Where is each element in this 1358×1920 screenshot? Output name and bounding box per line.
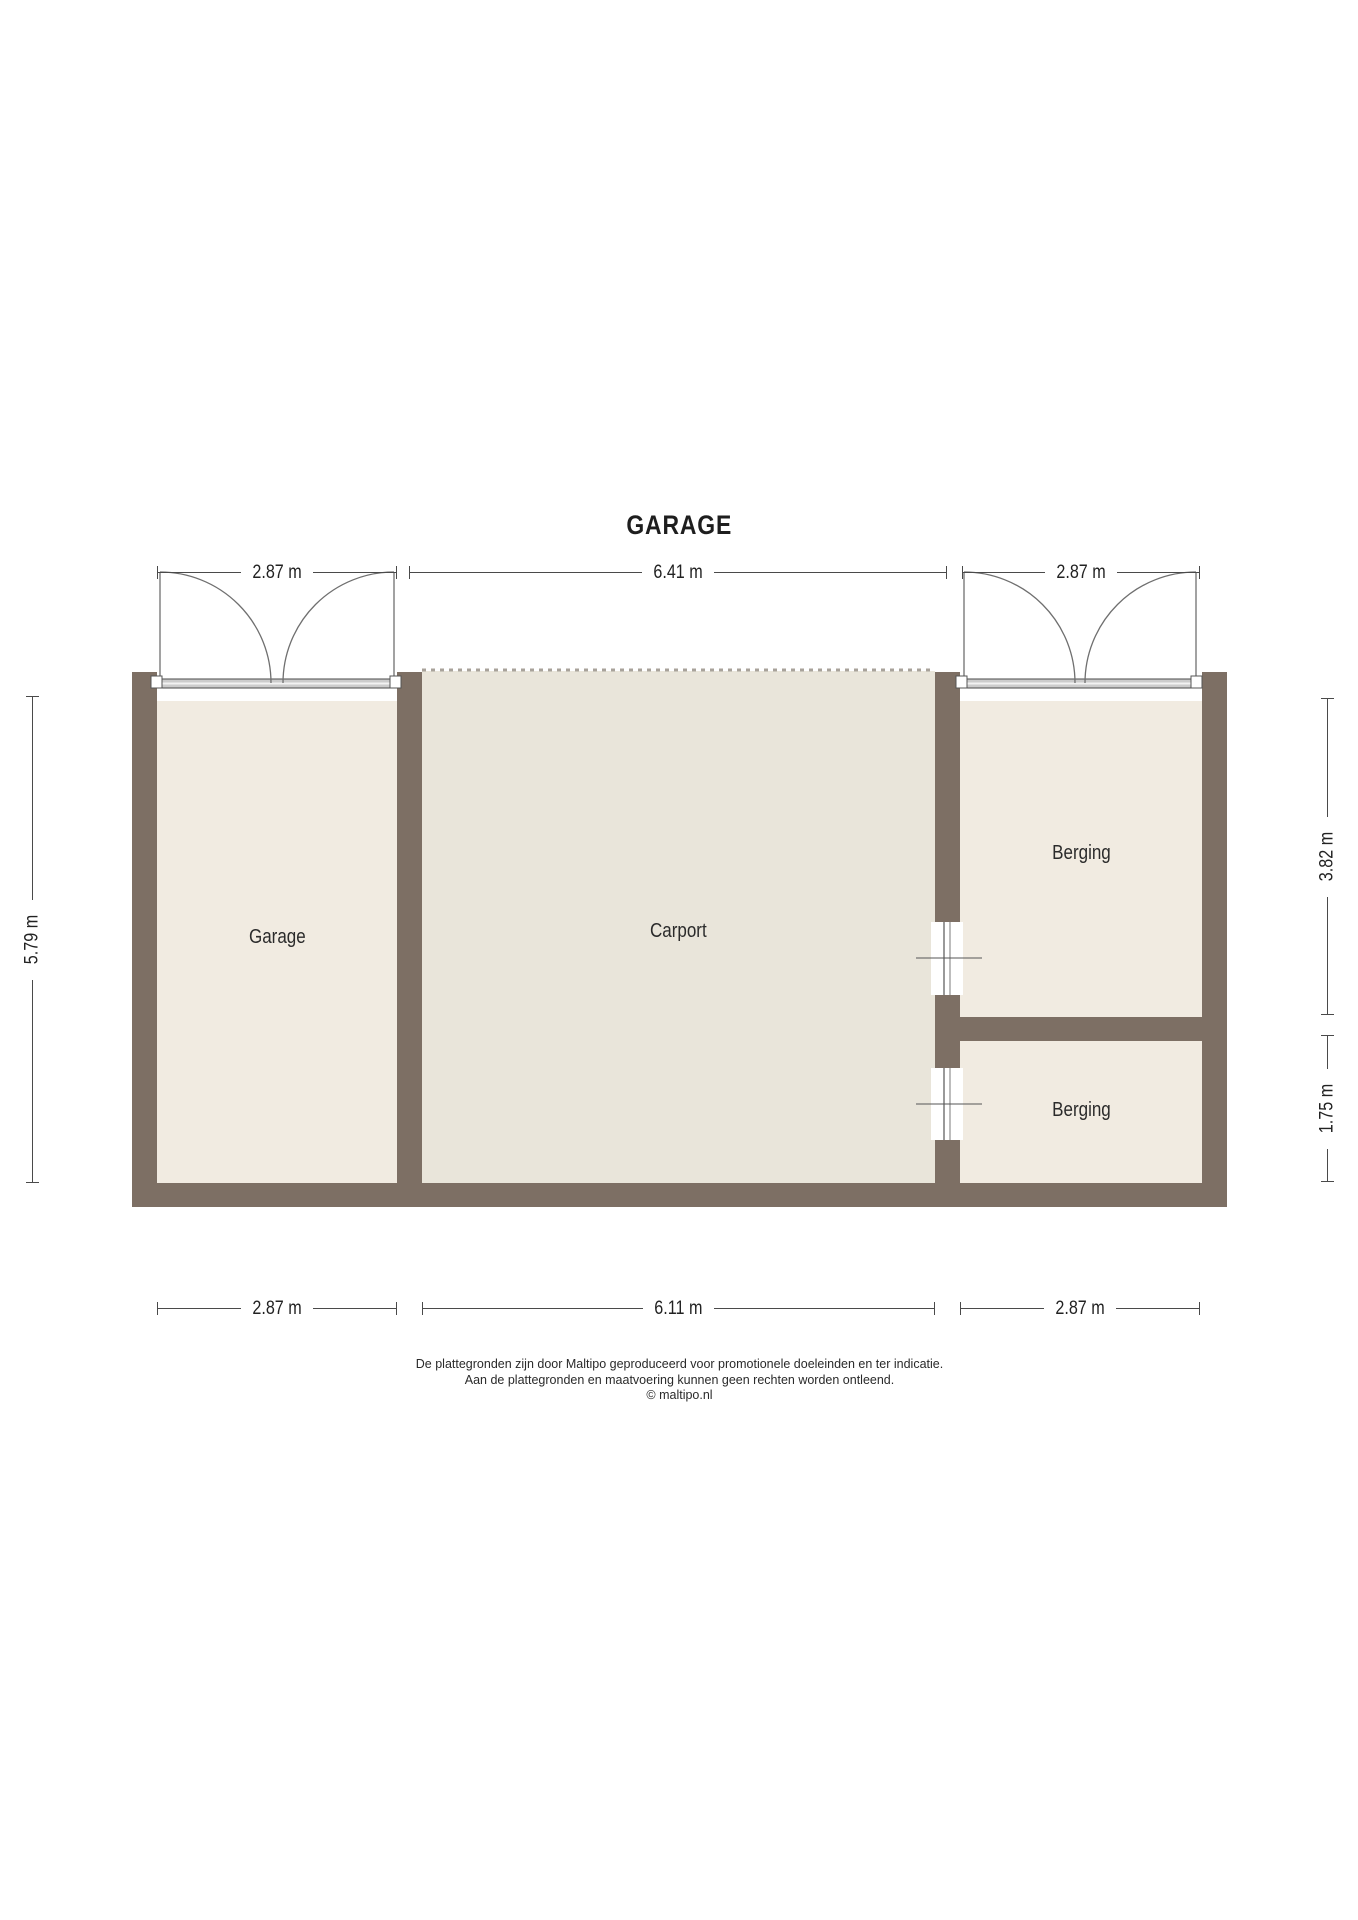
page-title-text: GARAGE	[627, 512, 733, 539]
wall-carport-berging-upper	[935, 672, 960, 922]
dimension-bottom-center: 6.11 m	[422, 1297, 935, 1319]
garage-double-door-icon	[151, 572, 401, 688]
dimension-bottom-left: 2.87 m	[157, 1297, 397, 1319]
disclaimer: De plattegronden zijn door Maltipo gepro…	[132, 1357, 1227, 1404]
wall-bottom	[132, 1183, 1227, 1207]
dimension-left: 5.79 m	[21, 696, 43, 1183]
wall-garage-carport	[397, 672, 422, 1183]
wall-left	[132, 672, 157, 1207]
berging-double-door-icon	[956, 572, 1202, 688]
wall-carport-berging-lower	[935, 1140, 960, 1183]
dimension-bottom-right: 2.87 m	[960, 1297, 1200, 1319]
dimension-top-center: 6.41 m	[409, 561, 947, 583]
room-label-berging-bottom: Berging	[960, 1100, 1202, 1120]
disclaimer-line-1: De plattegronden zijn door Maltipo gepro…	[132, 1357, 1227, 1373]
dimension-right-bottom: 1.75 m	[1316, 1035, 1338, 1182]
floorplan-page: GARAGE	[0, 0, 1358, 1920]
disclaimer-line-3: © maltipo.nl	[132, 1388, 1227, 1404]
page-title: GARAGE	[132, 512, 1227, 539]
room-label-berging-top: Berging	[960, 843, 1202, 863]
wall-berging-divider	[935, 1017, 1202, 1041]
dimension-right-top: 3.82 m	[1316, 698, 1338, 1015]
room-label-garage: Garage	[157, 927, 397, 947]
dimension-top-right: 2.87 m	[962, 561, 1200, 583]
dimension-top-left: 2.87 m	[157, 561, 397, 583]
disclaimer-line-2: Aan de plattegronden en maatvoering kunn…	[132, 1373, 1227, 1389]
room-label-carport: Carport	[422, 921, 935, 941]
wall-right	[1202, 672, 1227, 1207]
